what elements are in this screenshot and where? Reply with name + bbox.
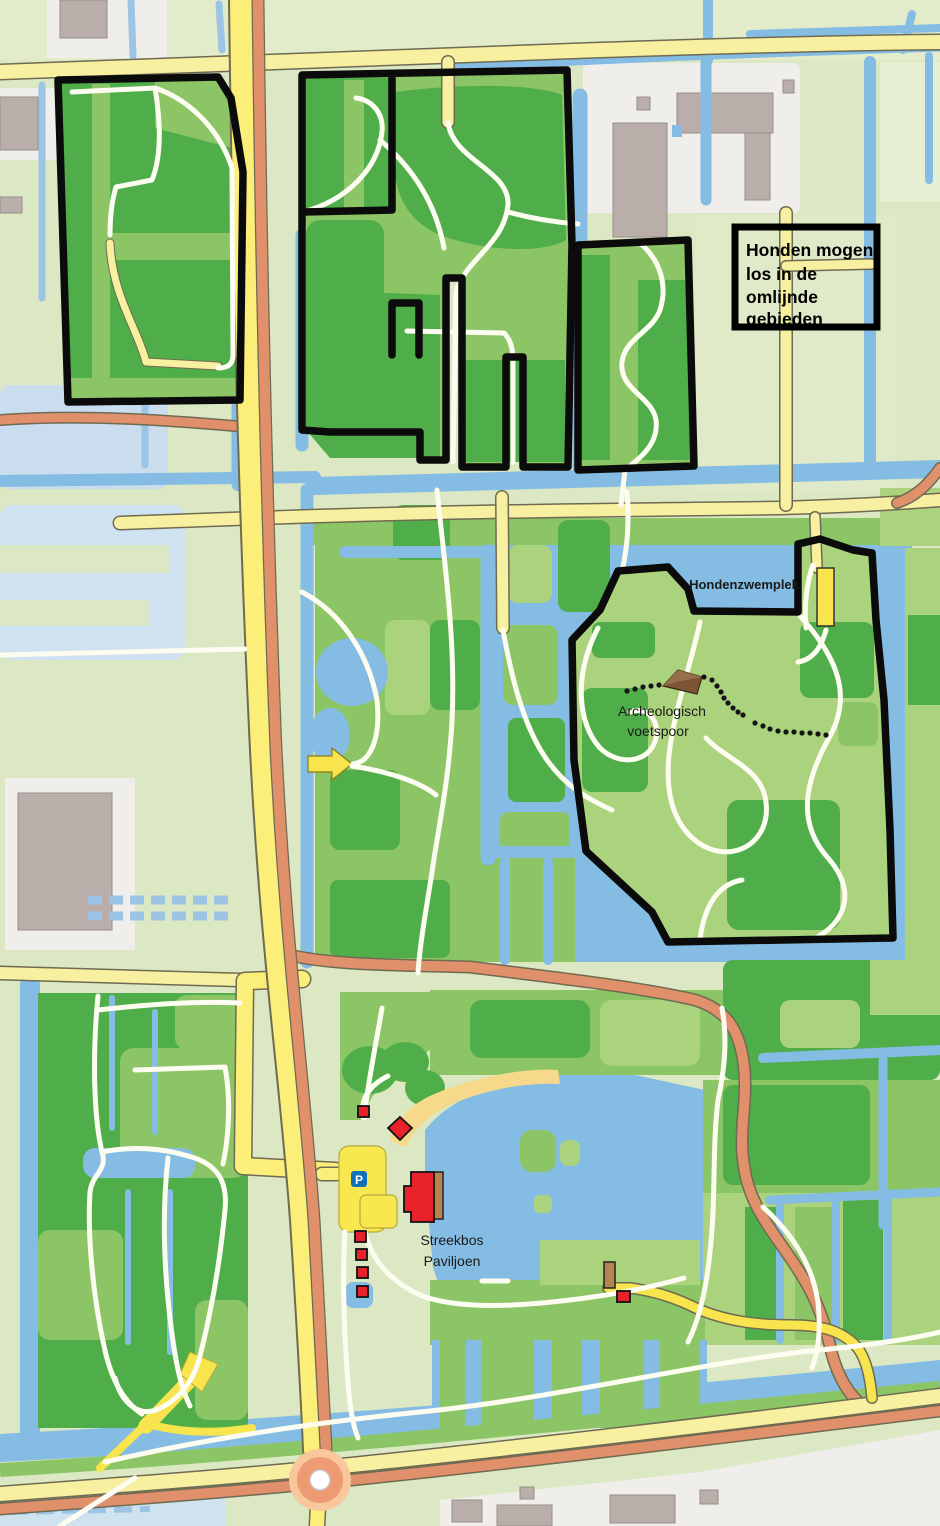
parking-icon: P [351,1171,367,1187]
label-archeologisch: Archeologisch [618,703,706,719]
building-icon [60,0,107,38]
building-icon [677,93,773,133]
label-paviljoen: Paviljoen [424,1253,481,1269]
legend-line: gebieden [746,309,823,329]
red-square-marker [357,1267,368,1278]
label-hondenzwemplek: Hondenzwemplek [689,577,800,592]
southeast-structure [604,1262,615,1288]
red-square-marker [356,1249,367,1260]
legend-line: los in de [746,264,817,284]
park-map: P Honden mogen los in de omlijnde gebied… [0,0,940,1526]
building-icon [613,123,667,237]
red-square-marker [617,1291,630,1302]
building-icon [0,97,38,150]
map-canvas: P Honden mogen los in de omlijnde gebied… [0,0,940,1526]
legend-line: omlijnde [746,287,818,307]
dog-swim-building [817,568,834,626]
building-icon [18,793,112,930]
legend-line: Honden mogen [746,240,873,260]
label-streekbos: Streekbos [420,1232,483,1248]
label-voetspoor: voetspoor [627,723,689,739]
red-square-marker [358,1106,369,1117]
svg-text:P: P [355,1173,363,1187]
red-square-marker [357,1286,368,1297]
lake-island [520,1130,556,1172]
red-square-marker [355,1231,366,1242]
roundabout [289,1449,351,1511]
